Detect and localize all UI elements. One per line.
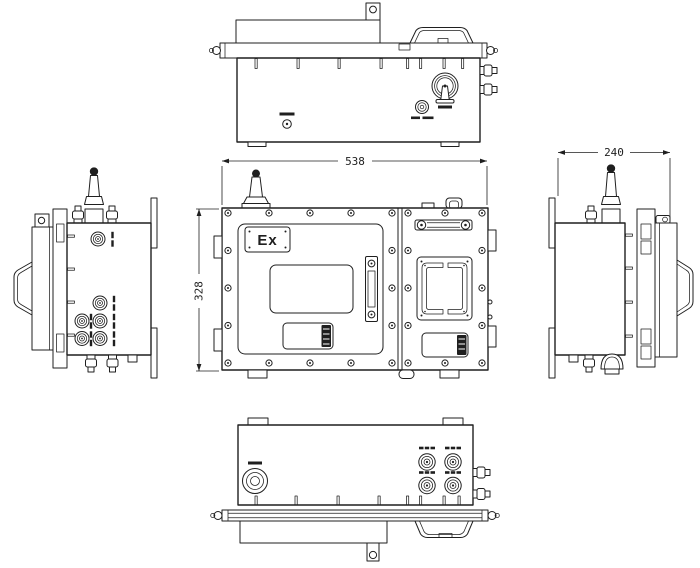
door-frame-column: [53, 209, 67, 368]
foot-tab: [248, 370, 267, 378]
foot-tab: [248, 142, 266, 147]
door-edge: [655, 223, 693, 357]
door-frame-column: [637, 209, 655, 367]
wall-flange: [151, 328, 157, 378]
enclosure-body-side: [555, 223, 625, 355]
power-label: [411, 117, 420, 120]
right-side-view: 240: [549, 146, 693, 378]
hinge-tab: [214, 236, 222, 258]
switch-label: [438, 106, 452, 109]
cable-gland-icon: [107, 355, 118, 372]
bnc-connector-icon: [445, 477, 461, 493]
connector-label: [419, 471, 435, 474]
stud-row: [626, 234, 633, 337]
cable-gland-icon: [586, 206, 597, 223]
cable-gland-icon: [473, 467, 490, 478]
door-bulge: [410, 28, 473, 44]
handle-bump: [14, 262, 32, 315]
connector-label: [90, 314, 92, 320]
rear-wall: [240, 521, 387, 543]
top-view: [209, 3, 497, 147]
connector-label: [113, 304, 115, 310]
hinge-cap: [656, 216, 670, 224]
mounting-flange: [209, 43, 497, 58]
power-label: [423, 117, 434, 120]
ex-marking-label: Ex: [257, 232, 277, 249]
hinge-pin: [488, 300, 492, 304]
display-window: [270, 265, 353, 313]
bnc-connector-icon: [91, 232, 105, 246]
connector-label: [111, 240, 113, 246]
bnc-connector-icon: [445, 454, 461, 470]
cable-gland-icon: [584, 355, 595, 372]
nameplate: [283, 323, 333, 349]
bnc-connector-icon: [419, 477, 435, 493]
ex-plate: Ex: [245, 227, 290, 252]
foot-tab: [441, 142, 459, 147]
connector-label: [113, 314, 115, 320]
bnc-connector-icon: [93, 332, 107, 346]
hinge-tab: [488, 326, 496, 347]
bottom-notch: [128, 355, 137, 362]
mounting-bracket-icon: [366, 3, 380, 20]
connector-label: [419, 447, 435, 450]
foot-tab: [440, 370, 459, 378]
technical-drawing: 538 328: [0, 0, 700, 568]
handle-bump: [677, 260, 693, 316]
front-view: 538 328: [193, 155, 497, 379]
connector-label: [113, 296, 115, 302]
wall-flange: [549, 328, 555, 378]
bnc-connector-icon: [75, 332, 89, 346]
mounting-flange: [211, 510, 500, 521]
width-dimension-label: 538: [345, 155, 365, 168]
bnc-connector-icon: [93, 314, 107, 328]
depth-dimension-label: 240: [604, 146, 624, 159]
foot-tab: [399, 370, 414, 379]
cable-gland-icon: [480, 84, 497, 95]
bnc-connector-icon: [419, 454, 435, 470]
cable-gland-icon: [480, 65, 497, 76]
foot-tab: [248, 418, 268, 425]
mounting-bracket-icon: [367, 543, 379, 561]
dome-gland-icon: [601, 354, 623, 374]
connector-label: [445, 447, 461, 450]
door-edge: [14, 227, 53, 350]
hinge-tab: [488, 230, 496, 251]
hinge-tab: [214, 329, 222, 351]
ground-label: [280, 113, 295, 116]
cable-gland-icon: [107, 206, 118, 223]
connector-label: [90, 340, 92, 346]
antenna-icon: [602, 165, 621, 223]
connector-label: [90, 322, 92, 328]
hinge-pin: [488, 315, 492, 319]
lift-handle-cap: [446, 198, 462, 209]
antenna-icon: [242, 170, 270, 209]
door-handle: [366, 257, 378, 322]
cable-gland-icon: [86, 355, 97, 372]
cable-gland-icon: [473, 489, 490, 500]
connector-label: [248, 462, 262, 465]
corner-bracket: [35, 214, 49, 227]
connector-label: [113, 340, 115, 346]
wall-flange: [549, 198, 555, 248]
connector-label: [445, 471, 461, 474]
connector-label: [111, 232, 113, 238]
rear-wall: [236, 20, 380, 43]
latch-bar: [415, 220, 472, 230]
bnc-connector-icon: [93, 296, 107, 310]
connector-label: [113, 331, 115, 337]
wall-flange: [151, 198, 157, 248]
cable-gland-icon: [73, 206, 84, 223]
connector-label: [113, 322, 115, 328]
left-side-view: [14, 168, 157, 378]
door-bulge: [415, 521, 473, 538]
connector-label: [90, 331, 92, 337]
antenna-icon: [85, 168, 104, 223]
height-dimension-label: 328: [193, 281, 206, 301]
bottom-view: [211, 418, 500, 561]
foot-tab: [443, 418, 463, 425]
nameplate: [422, 333, 468, 357]
enclosure-body-bottom: [238, 425, 473, 505]
bottom-notch: [569, 355, 578, 362]
bnc-connector-icon: [75, 314, 89, 328]
